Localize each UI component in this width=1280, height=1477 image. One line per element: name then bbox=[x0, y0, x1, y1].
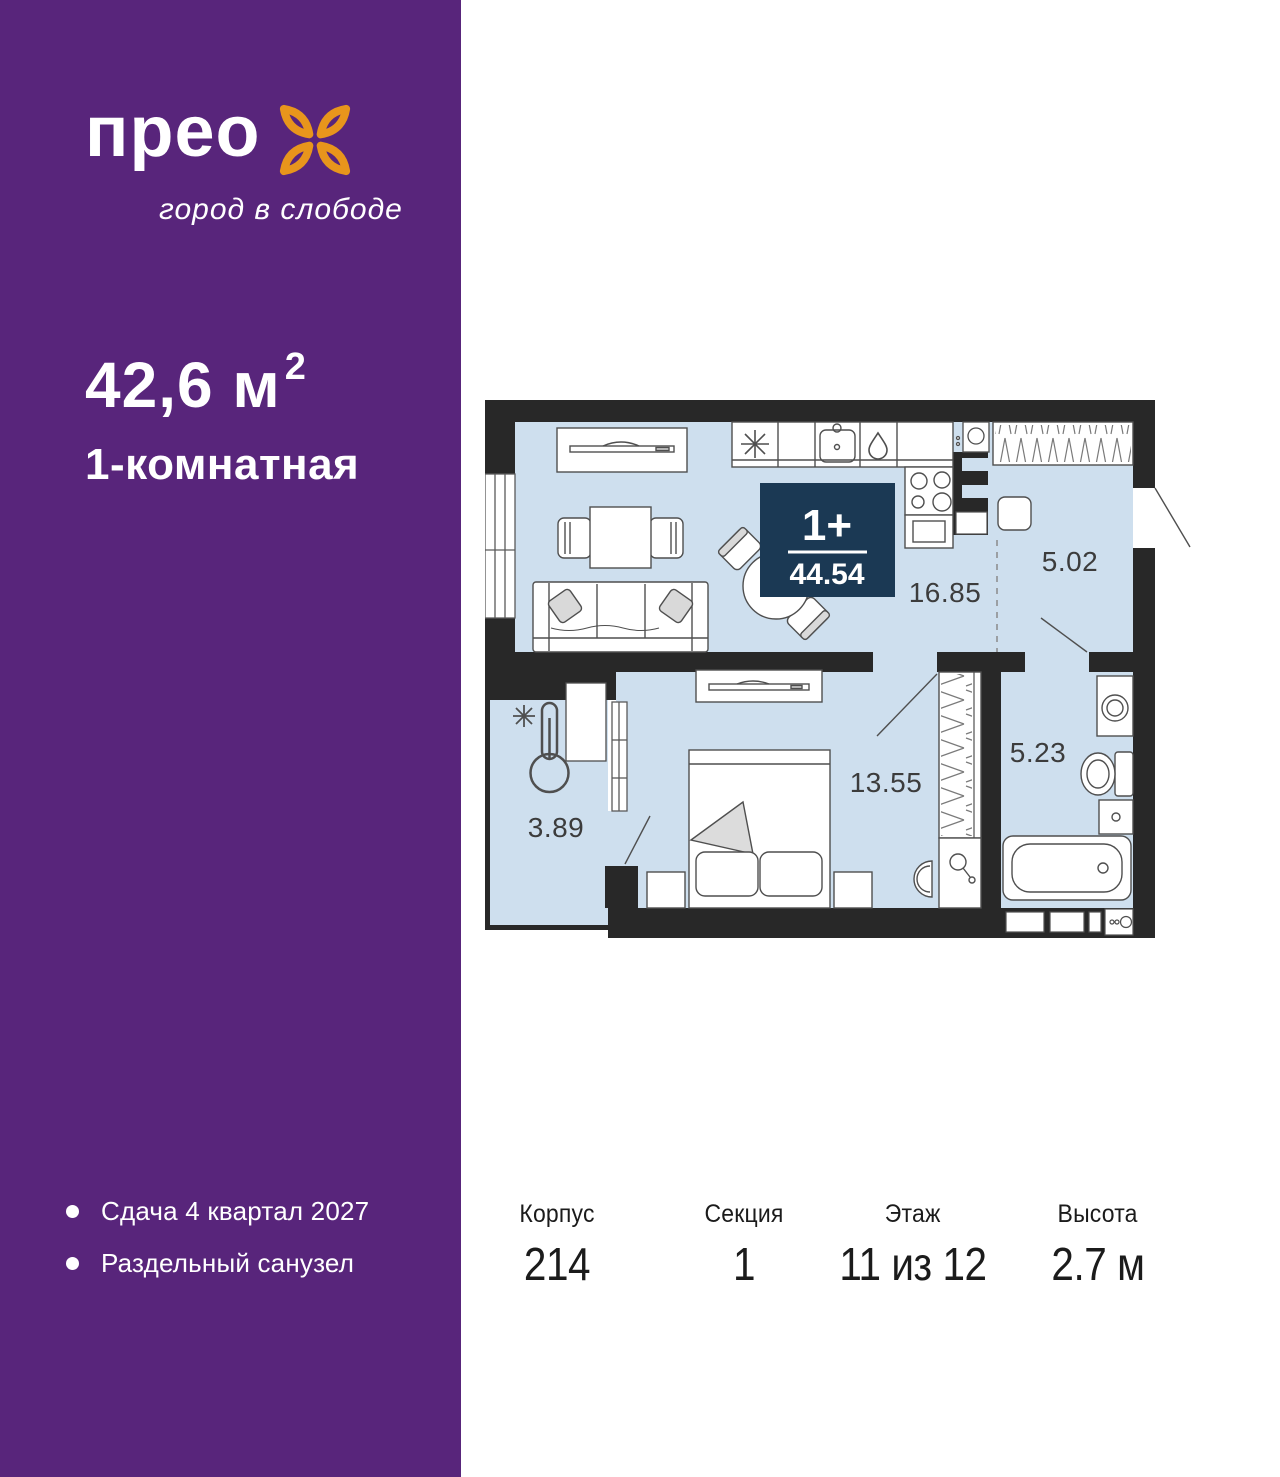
toilet bbox=[1081, 752, 1133, 796]
bullet-dot-icon bbox=[66, 1205, 79, 1218]
window-balcony-divider bbox=[612, 702, 627, 811]
brand-name: прео bbox=[85, 96, 261, 168]
room-label-balcony: 3.89 bbox=[528, 812, 585, 843]
badge-type: 1+ bbox=[802, 501, 852, 550]
sidebar: прео город в слободе 42,6 м2 1-комнатная… bbox=[0, 0, 461, 1477]
bathroom-sink bbox=[1099, 800, 1133, 834]
four-petal-flower-icon bbox=[269, 94, 361, 191]
room-label-bedroom: 13.55 bbox=[850, 767, 923, 798]
stove bbox=[905, 467, 953, 548]
room-label-hallway: 5.02 bbox=[1042, 546, 1099, 577]
apartment-area: 42,6 м2 bbox=[85, 348, 307, 422]
floor-plan: 1+ 44.54 16.85 5.02 13.55 5.23 3.89 bbox=[485, 400, 1195, 938]
ac-unit bbox=[566, 683, 606, 761]
nightstand-right bbox=[834, 872, 872, 908]
detail-floor: Этаж 11 из 12 bbox=[829, 1200, 996, 1291]
area-value: 42,6 bbox=[85, 349, 214, 421]
room-label-living-kitchen: 16.85 bbox=[909, 577, 982, 608]
bed bbox=[689, 750, 830, 908]
plan-badge: 1+ 44.54 bbox=[760, 483, 895, 597]
badge-total-area: 44.54 bbox=[789, 558, 864, 591]
window-living bbox=[485, 474, 515, 618]
feature-item-completion: Сдача 4 квартал 2027 bbox=[66, 1196, 369, 1227]
wardrobe-hallway bbox=[993, 422, 1133, 465]
sofa bbox=[533, 582, 708, 652]
washer-icon bbox=[1097, 676, 1133, 736]
brand-logo: прео город в слободе bbox=[85, 96, 403, 227]
detail-building: Корпус 214 bbox=[516, 1200, 598, 1291]
tv-stand-living bbox=[557, 428, 687, 472]
electrical-panel bbox=[998, 497, 1031, 530]
snowflake-fridge-icon bbox=[741, 430, 769, 458]
rooms-label: 1-комнатная bbox=[85, 440, 359, 490]
bullet-dot-icon bbox=[66, 1257, 79, 1270]
feature-list: Сдача 4 квартал 2027 Раздельный санузел bbox=[66, 1196, 369, 1300]
brand-tagline: город в слободе bbox=[159, 193, 403, 227]
area-superscript: 2 bbox=[285, 346, 307, 388]
wall-vents bbox=[1006, 909, 1133, 935]
feature-item-bathroom: Раздельный санузел bbox=[66, 1248, 369, 1279]
tv-stand-bedroom bbox=[696, 670, 822, 702]
bathtub bbox=[1003, 836, 1131, 900]
detail-height: Высота 2.7 м bbox=[1045, 1200, 1151, 1291]
area-unit: м bbox=[232, 349, 280, 421]
dressing-niche bbox=[939, 838, 981, 908]
nightstand-left bbox=[647, 872, 685, 908]
wardrobe-bedroom bbox=[939, 672, 981, 838]
detail-section: Секция 1 bbox=[701, 1200, 787, 1291]
room-label-bathroom: 5.23 bbox=[1010, 737, 1067, 768]
